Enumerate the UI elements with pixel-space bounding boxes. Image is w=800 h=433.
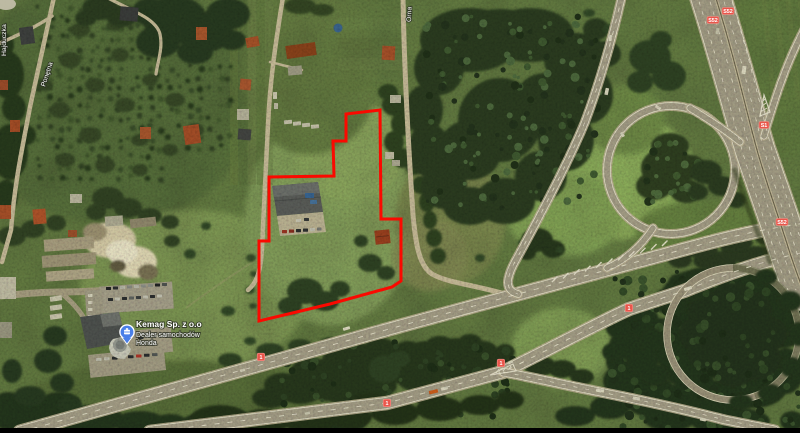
svg-text:1: 1 [386,401,389,407]
svg-text:Honda: Honda [136,340,157,347]
svg-text:Dealer samochodów: Dealer samochodów [136,332,201,339]
svg-text:1: 1 [260,355,263,361]
svg-text:S52: S52 [777,220,787,226]
svg-text:1: 1 [628,306,631,312]
svg-text:Orna: Orna [406,7,414,23]
svg-text:S1: S1 [761,123,768,129]
svg-text:1: 1 [500,361,503,367]
svg-text:Hajduczka: Hajduczka [1,24,8,56]
svg-text:S52: S52 [708,18,718,24]
svg-text:S52: S52 [723,9,733,15]
svg-text:Kemag Sp. z o.o: Kemag Sp. z o.o [136,319,202,329]
